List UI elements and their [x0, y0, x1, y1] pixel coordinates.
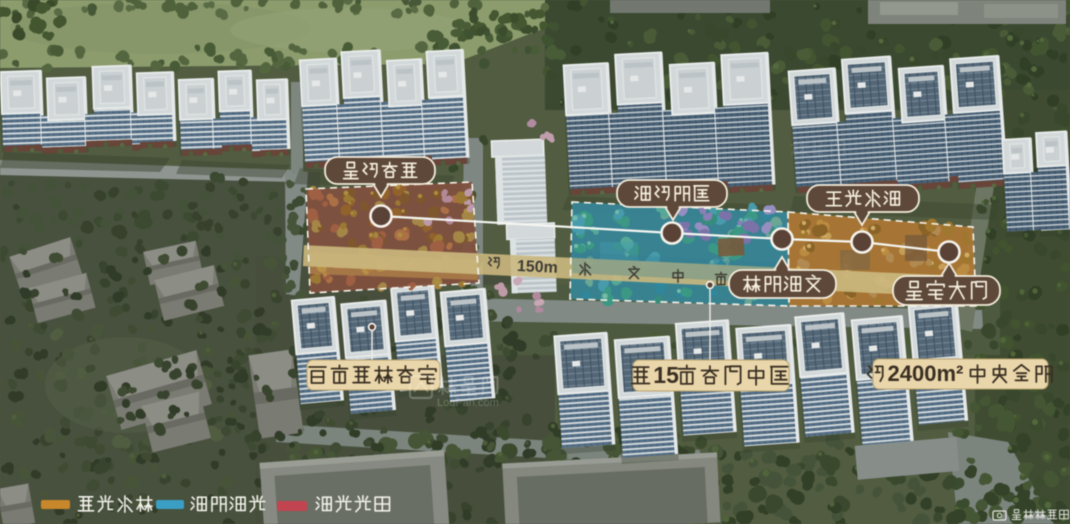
svg-text:150m: 150m — [517, 258, 559, 277]
svg-text:2400m²: 2400m² — [888, 361, 964, 386]
svg-text:LouPan.com: LouPan.com — [437, 397, 499, 409]
svg-text:15: 15 — [653, 362, 679, 388]
